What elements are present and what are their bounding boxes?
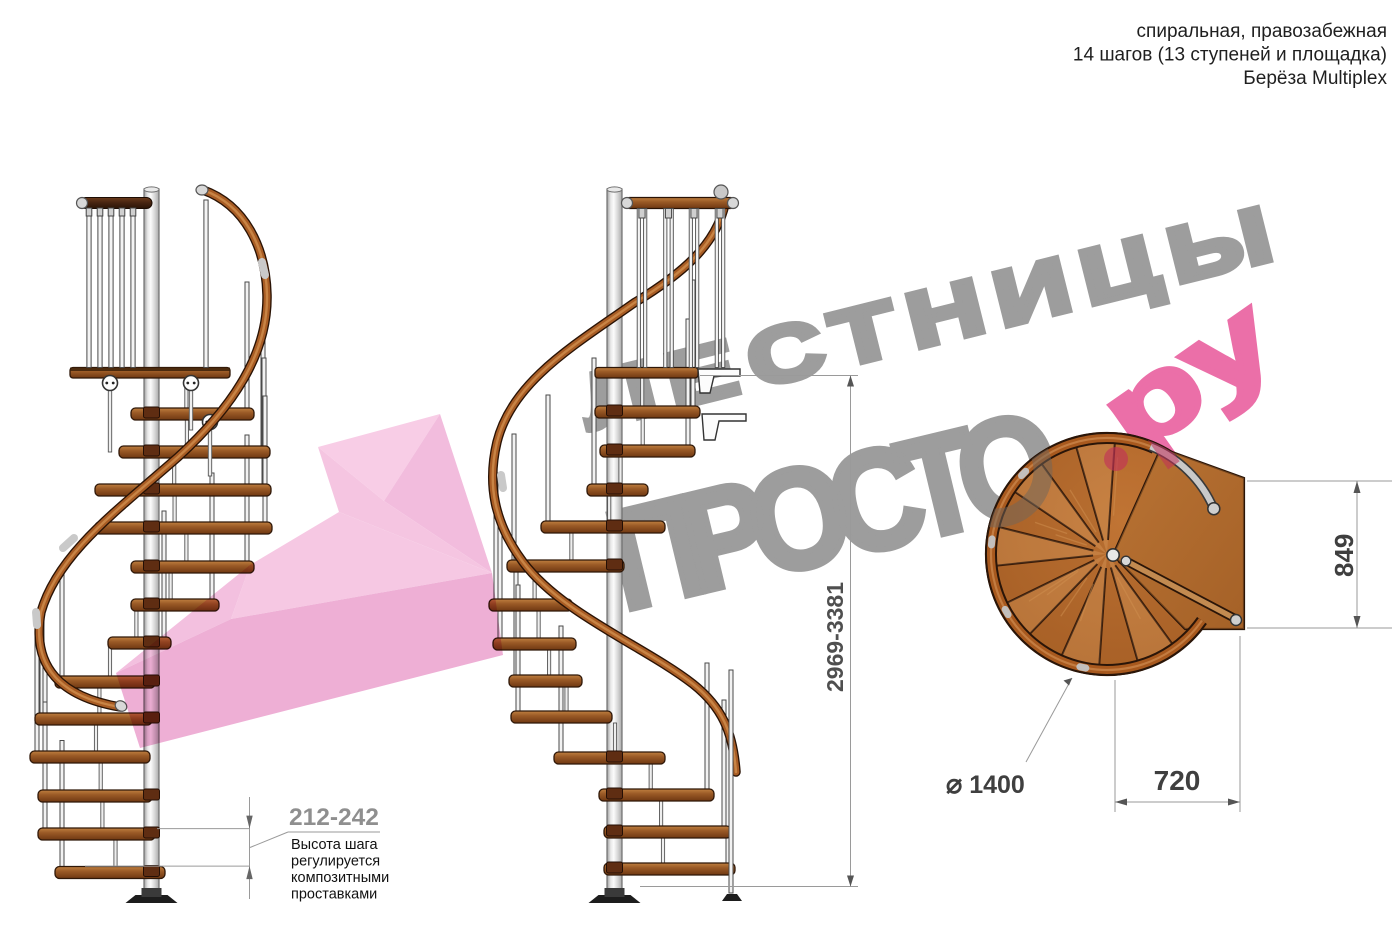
- svg-text:212-242: 212-242: [289, 804, 379, 831]
- svg-text:720: 720: [1154, 765, 1201, 796]
- svg-text:2969-3381: 2969-3381: [822, 582, 848, 692]
- svg-text:⌀ 1400: ⌀ 1400: [946, 769, 1025, 799]
- svg-text:849: 849: [1329, 534, 1359, 577]
- svg-text:Высота шагарегулируетсякомпози: Высота шагарегулируетсякомпозитнымипрост…: [291, 837, 389, 903]
